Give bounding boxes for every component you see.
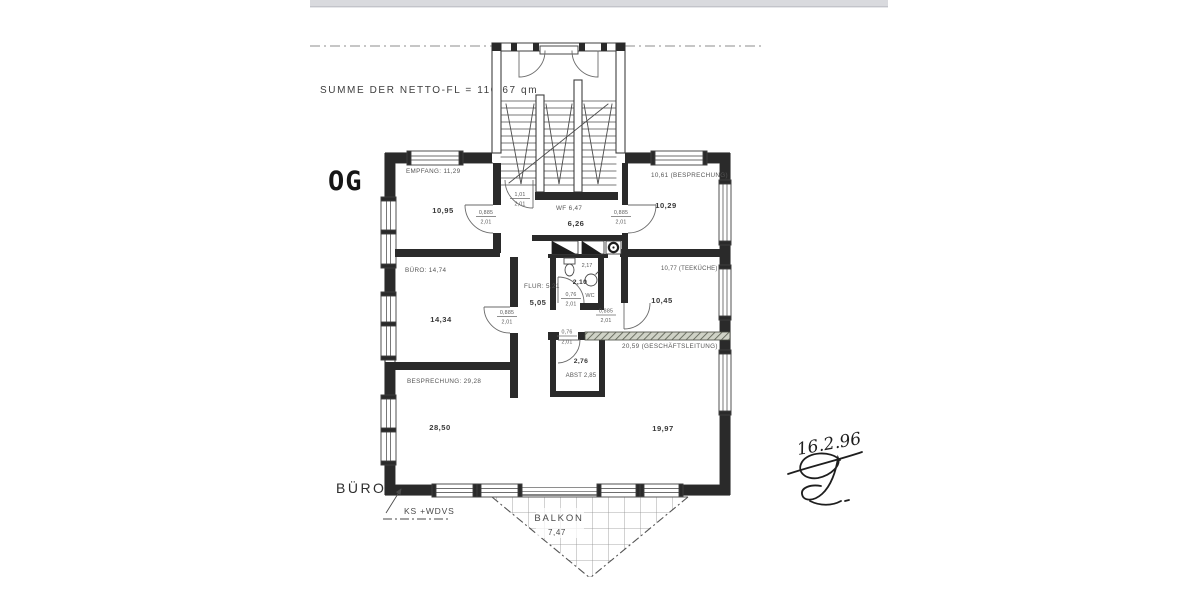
stairwell (492, 43, 625, 200)
room-label-besprechung-unten: BESPRECHUNG: 29,28 (407, 378, 481, 385)
room-label-abst: ABST 2,85 (566, 373, 597, 379)
room-area-abst: 2,76 (574, 358, 588, 365)
room-area-geschaeftsleitung: 19,97 (652, 424, 674, 433)
window-bottom-1 (432, 484, 477, 497)
svg-text:2,01: 2,01 (501, 320, 512, 326)
svg-text:0,885: 0,885 (479, 210, 493, 216)
floorplan-drawing: SUMME DER NETTO-FL = 110,67 qm OG (0, 0, 1200, 600)
window-right-1 (719, 180, 731, 245)
balcony-area: 7,47 (548, 528, 566, 537)
room-label-buero: BÜRO: 14,74 (405, 266, 446, 274)
room-label-windfang: WF 6,47 (556, 205, 582, 212)
room-area-empfang: 10,95 (432, 206, 454, 215)
room-label-besprechung-oben: 10,61 (BESPRECHUNG) (651, 172, 728, 179)
scanned-floorplan-page: SUMME DER NETTO-FL = 110,67 qm OG (0, 0, 1200, 600)
window-top-right (651, 151, 707, 165)
door-dim-abst: 0,76 2,01 (557, 330, 577, 346)
windows (381, 151, 731, 497)
svg-text:2,01: 2,01 (615, 220, 626, 226)
room-area-teekueche: 10,45 (651, 296, 673, 305)
svg-text:0,885: 0,885 (599, 309, 613, 315)
svg-text:0,76: 0,76 (561, 330, 572, 336)
netto-area-summary: SUMME DER NETTO-FL = 110,67 qm (320, 85, 538, 96)
window-left-3 (381, 395, 396, 465)
svg-text:2,01: 2,01 (600, 318, 611, 324)
svg-text:2,01: 2,01 (480, 220, 491, 226)
window-bottom-3 (597, 484, 640, 497)
window-bottom-4 (640, 484, 683, 497)
room-label-empfang: EMPFANG: 11,29 (406, 168, 461, 175)
svg-text:2,01: 2,01 (561, 340, 572, 346)
stair-post-left (536, 95, 544, 192)
signature-scribble (788, 452, 862, 505)
balcony-label: BALKON (534, 513, 583, 524)
toilet-icon (564, 258, 575, 276)
room-area-besprechung-oben: 10,29 (655, 201, 677, 210)
window-left-2 (381, 292, 396, 360)
balcony-door-threshold (522, 488, 597, 492)
floor-marker-og: OG (328, 166, 363, 197)
room-label-teekueche: 10,77 (TEEKÜCHE) (661, 265, 718, 272)
window-right-2 (719, 265, 731, 320)
building-label-buero: BÜRO (336, 479, 386, 496)
door-teekueche-swing (624, 303, 650, 329)
stair-landing-doors (519, 51, 598, 77)
door-dim-buero: 0,885 2,01 (497, 310, 517, 326)
hatched-wall (585, 332, 730, 340)
svg-text:2,01: 2,01 (565, 302, 576, 308)
door-dim-wc: 0,76 2,01 (561, 292, 581, 308)
door-dim-empfang: 0,885 2,01 (476, 210, 496, 226)
door-besprechung-swing (628, 205, 656, 233)
room-label-geschaeftsleitung: 20,59 (GESCHÄFTSLEITUNG) (622, 342, 718, 350)
door-dim-teekueche: 0,885 2,01 (596, 309, 616, 325)
svg-text:2,01: 2,01 (514, 202, 525, 208)
balcony: BALKON 7,47 (492, 497, 688, 578)
room-area-windfang: 6,26 (568, 219, 585, 228)
room-area-wc: 2,10 (573, 279, 587, 286)
construction-note-text: KS +WDVS (404, 506, 455, 516)
door-dim-besprechung: 0,885 2,01 (611, 210, 631, 226)
room-area-besprechung-unten: 28,50 (429, 423, 451, 432)
stair-direction-lines (506, 104, 612, 184)
wc-width-dim: 2,17 (582, 263, 593, 269)
room-area-flur: 5,05 (530, 298, 547, 307)
window-top-left (407, 151, 463, 165)
svg-text:0,76: 0,76 (565, 292, 576, 298)
svg-text:0,885: 0,885 (614, 210, 628, 216)
kitchen-counters (552, 241, 621, 254)
window-bottom-2 (477, 484, 522, 497)
room-area-buero: 14,34 (430, 315, 452, 324)
svg-text:0,885: 0,885 (500, 310, 514, 316)
stove-icon (606, 241, 621, 254)
window-right-3 (719, 350, 731, 415)
room-label-flur: FLUR: 5,21 (524, 283, 560, 290)
scan-edge-strip (310, 0, 888, 7)
window-left-1 (381, 197, 396, 268)
handwritten-date-signature: 16.2.96 (788, 429, 863, 505)
svg-text:1,01: 1,01 (514, 192, 525, 198)
stair-post-right (574, 80, 582, 192)
room-label-wc: WC (585, 293, 594, 299)
